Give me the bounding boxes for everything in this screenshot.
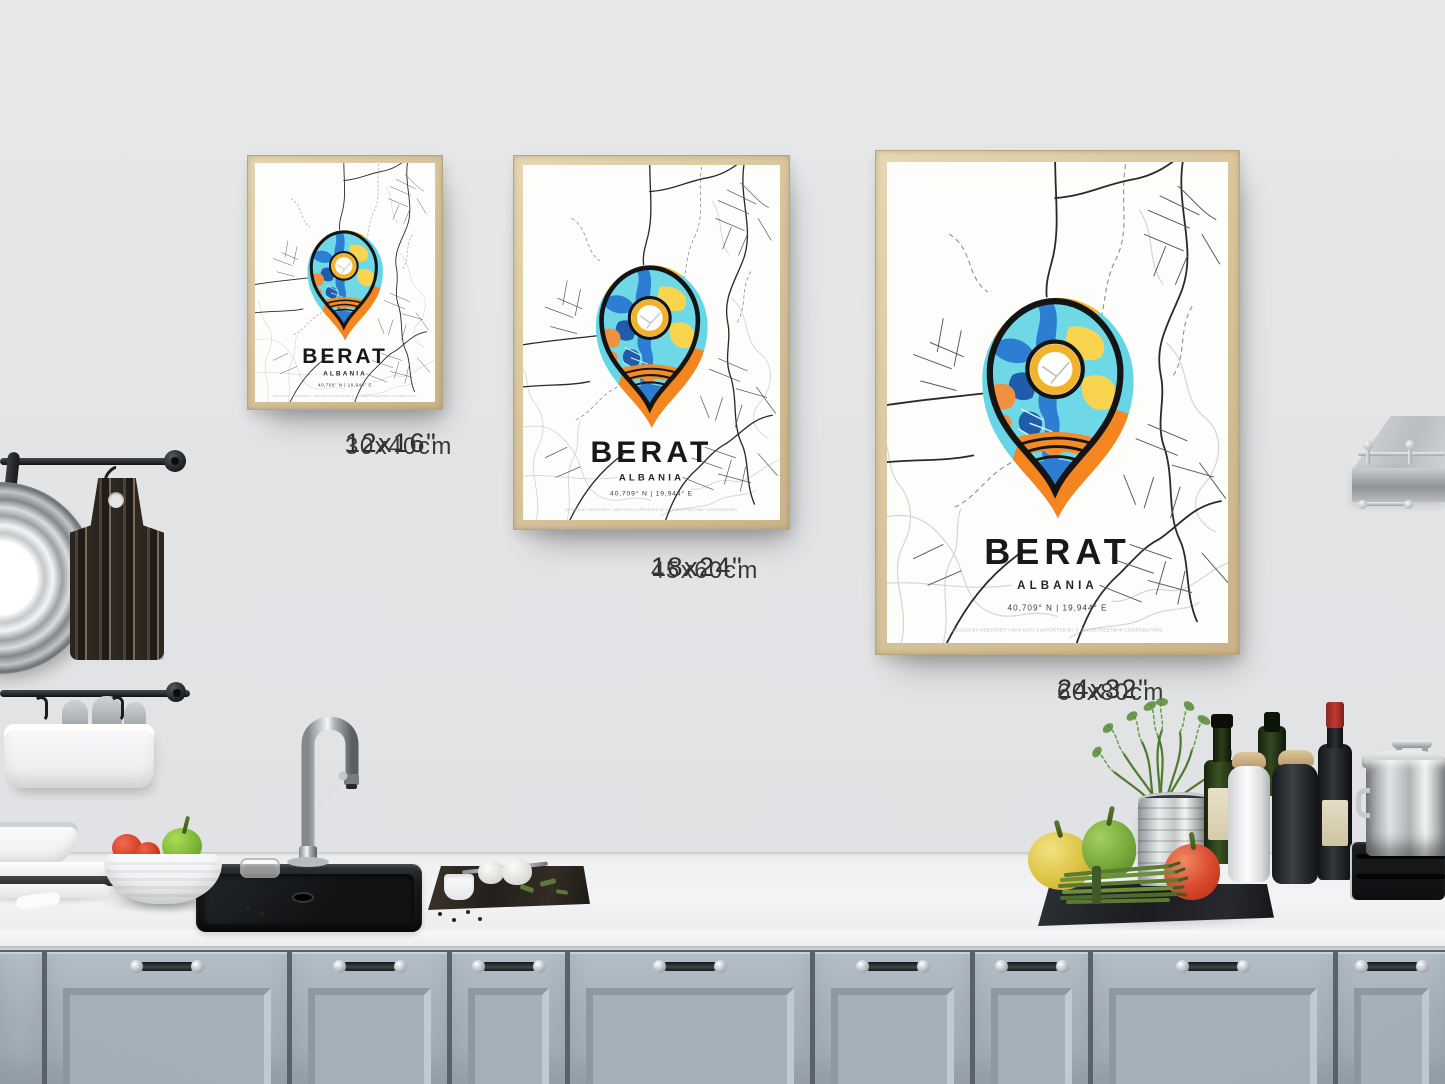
cabinet-door-panel [586, 988, 794, 1084]
black-pepper-grinder [1272, 764, 1318, 884]
cabinet-door [570, 952, 810, 1084]
cabinet-handle [865, 962, 921, 971]
cabinet-handle [342, 962, 398, 971]
pot-lid-handle [1392, 740, 1432, 748]
cabinet-door [0, 952, 42, 1084]
cooktop-grate [1356, 874, 1445, 879]
hood-rail [1358, 452, 1445, 456]
cabinet-handle [139, 962, 195, 971]
cabinet-door [452, 952, 565, 1084]
garlic-bulb [478, 860, 504, 884]
wall-rail-lower [0, 690, 190, 697]
small-cup [444, 874, 474, 900]
counter-shadow [0, 946, 1445, 951]
poster-text-block: BERAT ALBANIA 40,709° N | 19,944° E DESI… [887, 162, 1228, 643]
poster-paper: BERAT ALBANIA 40,709° N | 19,944° E DESI… [255, 163, 435, 402]
basket-hook [110, 696, 124, 722]
hood-rail-ball [1404, 500, 1413, 509]
poster-frame-large: BERAT ALBANIA 40,709° N | 19,944° E DESI… [875, 150, 1240, 655]
poster-city-title: BERAT [255, 345, 435, 369]
wine-label [1322, 800, 1348, 846]
poster-city-title: BERAT [887, 531, 1228, 573]
kitchen-sink [196, 864, 422, 932]
utensil-basket [4, 724, 154, 788]
poster-frame-small: BERAT ALBANIA 40,709° N | 19,944° E DESI… [247, 155, 443, 410]
hood-rail-ball [1363, 440, 1373, 450]
poster-text-block: BERAT ALBANIA 40,709° N | 19,944° E DESI… [255, 163, 435, 402]
cabinet-handle [1004, 962, 1060, 971]
bottle-cap [1211, 714, 1233, 728]
cabinet-handle [662, 962, 718, 971]
poster-paper: BERAT ALBANIA 40,709° N | 19,944° E DESI… [887, 162, 1228, 643]
peppercorn [246, 906, 250, 910]
asparagus-bunch [1058, 858, 1188, 906]
cabinet-door [1093, 952, 1333, 1084]
size-centimeters: 45x60cm [651, 557, 759, 585]
cabinet-door [47, 952, 287, 1084]
cabinet-handle [1185, 962, 1241, 971]
poster-credit: DESIGN BY HEBSTREIT | MAP DATA SUPPORTED… [887, 628, 1228, 633]
cabinet-door-panel [63, 988, 271, 1084]
cabinet-door-panel [468, 988, 549, 1084]
cabinet-door-panel [831, 988, 954, 1084]
faucet [262, 690, 382, 870]
cutting-board-hole [108, 492, 124, 508]
cabinet-door [1338, 952, 1445, 1084]
rail-end-knob [164, 450, 186, 472]
size-centimeters: 30x40cm [345, 433, 453, 461]
rail-end-knob [166, 682, 186, 702]
poster-coordinates: 40,709° N | 19,944° E [523, 491, 780, 498]
cabinet-door [815, 952, 970, 1084]
range-hood-band [1352, 468, 1445, 502]
pot-side-handle [1356, 788, 1370, 818]
peppercorn [466, 910, 470, 914]
poster-coordinates: 40,709° N | 19,944° E [887, 604, 1228, 613]
wall-rail-upper [0, 458, 186, 465]
poster-coordinates: 40,709° N | 19,944° E [255, 382, 435, 387]
kitchen-poster-mockup-scene: BERAT ALBANIA 40,709° N | 19,944° E DESI… [0, 0, 1445, 1084]
peppercorn [452, 918, 456, 922]
sink-drain [292, 892, 314, 903]
hood-rail-ball [1358, 500, 1367, 509]
bottle-cap [1264, 712, 1280, 732]
poster-credit: DESIGN BY HEBSTREIT | MAP DATA SUPPORTED… [255, 394, 435, 398]
garlic-bulb [502, 858, 532, 885]
cabinet-door [292, 952, 447, 1084]
white-pepper-grinder [1228, 766, 1270, 882]
cabinet-door-panel [1109, 988, 1317, 1084]
poster-country: ALBANIA [255, 370, 435, 377]
cabinet-door-panel [1354, 988, 1429, 1084]
cabinet-handle [1364, 962, 1420, 971]
basket-hook [34, 696, 48, 722]
poster-text-block: BERAT ALBANIA 40,709° N | 19,944° E DESI… [523, 165, 780, 520]
poster-paper: BERAT ALBANIA 40,709° N | 19,944° E DESI… [523, 165, 780, 520]
poster-credit: DESIGN BY HEBSTREIT | MAP DATA SUPPORTED… [523, 508, 780, 512]
hood-rail-ball [1405, 440, 1415, 450]
poster-country: ALBANIA [523, 473, 780, 484]
poster-city-title: BERAT [523, 436, 780, 470]
cabinet-door [975, 952, 1088, 1084]
bottle-neck [1213, 726, 1231, 762]
cabinet-door-panel [308, 988, 431, 1084]
peppercorn [438, 912, 442, 916]
cabinet-row [0, 950, 1445, 1084]
stock-pot [1366, 760, 1445, 856]
poster-country: ALBANIA [887, 580, 1228, 592]
cabinet-handle [481, 962, 537, 971]
cabinet-door-panel [991, 988, 1072, 1084]
wine-red-capsule [1326, 702, 1344, 728]
glass-dish [240, 858, 280, 878]
peppercorn [478, 917, 482, 921]
poster-frame-medium: BERAT ALBANIA 40,709° N | 19,944° E DESI… [513, 155, 790, 530]
peppercorn [260, 912, 264, 916]
